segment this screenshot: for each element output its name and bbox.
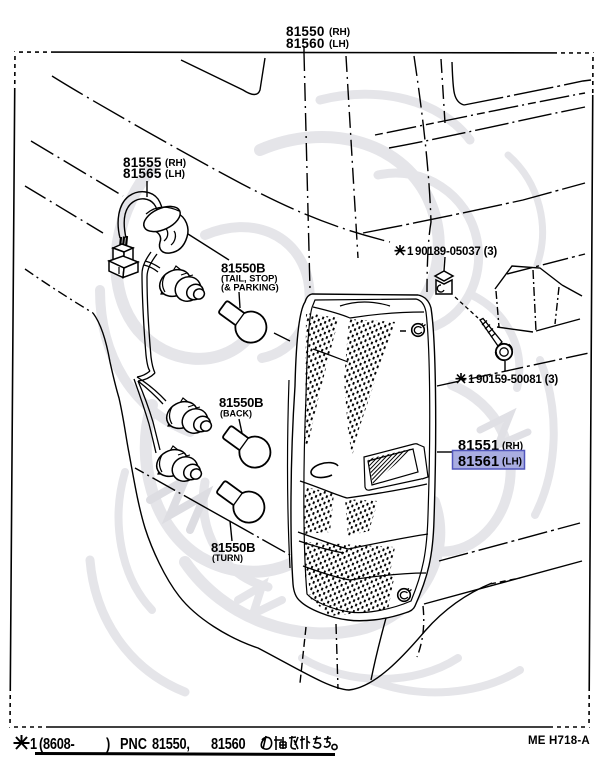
- svg-text:(LH): (LH): [329, 39, 349, 50]
- svg-text:(8608-: (8608-: [39, 736, 75, 754]
- svg-text:(LH): (LH): [502, 457, 522, 468]
- svg-text:90189-05037 (3): 90189-05037 (3): [415, 246, 497, 258]
- svg-text:81561: 81561: [458, 454, 499, 470]
- svg-text:(& PARKING): (& PARKING): [221, 283, 279, 293]
- svg-text:81560: 81560: [211, 736, 246, 754]
- svg-text:PNC: PNC: [120, 736, 147, 754]
- svg-text:(RH): (RH): [329, 27, 350, 38]
- svg-text:1: 1: [407, 246, 414, 258]
- svg-text:ME H718-A: ME H718-A: [528, 735, 590, 747]
- svg-text:90159-50081 (3): 90159-50081 (3): [476, 374, 558, 386]
- svg-text:(BACK): (BACK): [220, 409, 252, 419]
- svg-text:(RH): (RH): [165, 158, 186, 169]
- svg-text:1: 1: [30, 736, 37, 754]
- svg-text:81560: 81560: [286, 36, 325, 51]
- svg-text:(TURN): (TURN): [212, 553, 243, 563]
- svg-text:): ): [106, 736, 110, 754]
- svg-text:81565: 81565: [123, 166, 162, 181]
- svg-text:1: 1: [468, 374, 475, 386]
- svg-text:(LH): (LH): [165, 169, 185, 180]
- svg-text:81550,: 81550,: [152, 736, 190, 754]
